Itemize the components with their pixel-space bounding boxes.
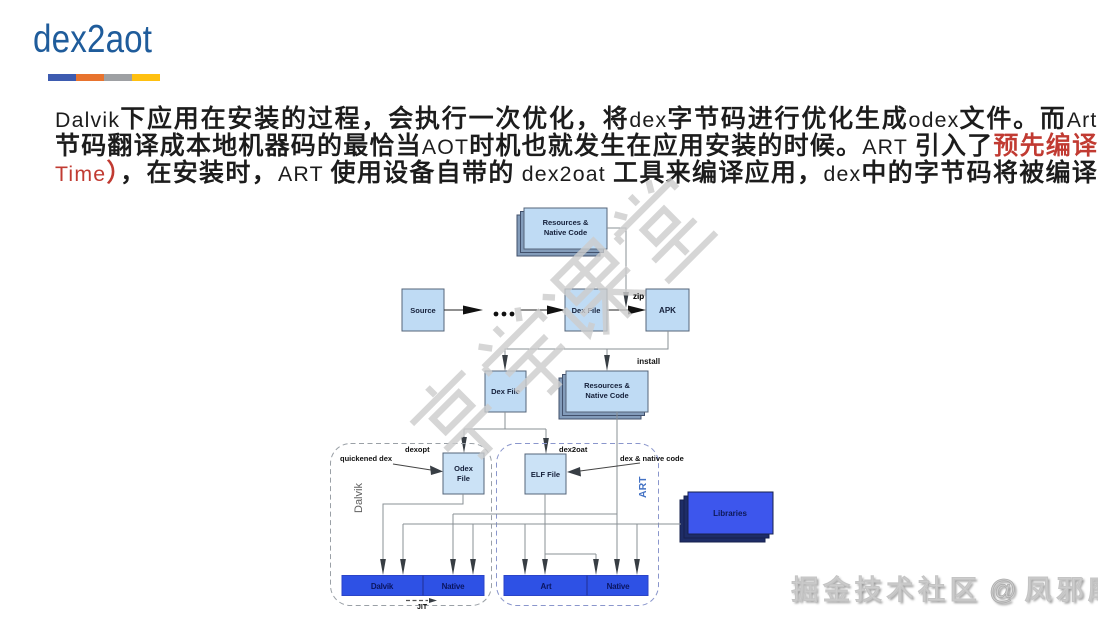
svg-text:Libraries: Libraries xyxy=(713,509,747,518)
svg-text:dexopt: dexopt xyxy=(405,445,430,454)
svg-text:zip: zip xyxy=(633,292,644,301)
svg-text:Native: Native xyxy=(442,582,466,591)
svg-text:dex2oat: dex2oat xyxy=(559,445,588,454)
svg-text:File: File xyxy=(457,474,470,483)
svg-text:JIT: JIT xyxy=(417,604,428,611)
svg-text:install: install xyxy=(637,357,660,366)
svg-text:Odex: Odex xyxy=(454,464,474,473)
svg-text:ELF File: ELF File xyxy=(531,470,560,479)
svg-text:Dalvik: Dalvik xyxy=(371,582,394,591)
svg-text:Resources &: Resources & xyxy=(584,381,630,390)
svg-text:APK: APK xyxy=(659,306,676,315)
svg-text:Native Code: Native Code xyxy=(585,391,628,400)
svg-text:Art: Art xyxy=(541,582,552,591)
svg-text:Source: Source xyxy=(410,306,435,315)
svg-text:Native: Native xyxy=(607,582,631,591)
svg-text:Resources &: Resources & xyxy=(543,218,589,227)
svg-text:Native Code: Native Code xyxy=(544,228,587,237)
svg-text:quickened dex: quickened dex xyxy=(340,454,393,463)
svg-text:Dalvik: Dalvik xyxy=(353,483,365,513)
svg-text:ART: ART xyxy=(637,476,649,498)
svg-text:dex & native code: dex & native code xyxy=(620,454,684,463)
